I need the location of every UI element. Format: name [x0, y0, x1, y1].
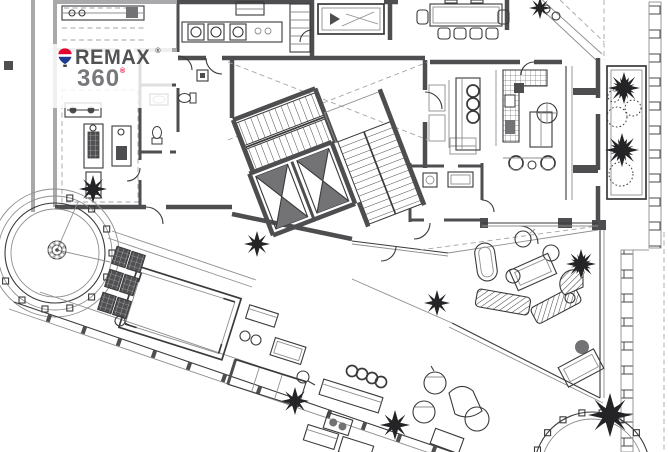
- balcony-railing-right: [621, 2, 661, 452]
- railing-posts: [46, 314, 437, 452]
- media-room: [318, 4, 384, 34]
- kitchen-island: [449, 78, 480, 150]
- center-rosette: [48, 241, 66, 259]
- stair-elevator-core: [229, 67, 424, 260]
- watermark-suffix-text: 360: [77, 67, 120, 91]
- room-foyer-storage: [62, 6, 144, 40]
- powder-room: [410, 138, 482, 222]
- terrace-posts: [3, 195, 115, 312]
- outdoor-chairs: [413, 366, 489, 452]
- floor-plan-page: REMAX ® 360 ®: [0, 0, 668, 452]
- pool-terrace: [9, 231, 452, 452]
- room-laundry: [182, 2, 282, 42]
- registered-mark-red: ®: [120, 67, 125, 91]
- remax-balloon-icon: [57, 47, 73, 68]
- registered-mark: ®: [155, 47, 160, 57]
- spa: [558, 349, 604, 387]
- dining-area: [417, 0, 509, 39]
- watermark-brand-text: REMAX: [75, 47, 150, 69]
- planter-box: [605, 66, 646, 199]
- elevator-cab: [297, 149, 349, 213]
- remax-watermark: REMAX ® 360 ®: [52, 44, 172, 108]
- kitchen: [496, 66, 598, 200]
- closet-shelving: [290, 4, 310, 52]
